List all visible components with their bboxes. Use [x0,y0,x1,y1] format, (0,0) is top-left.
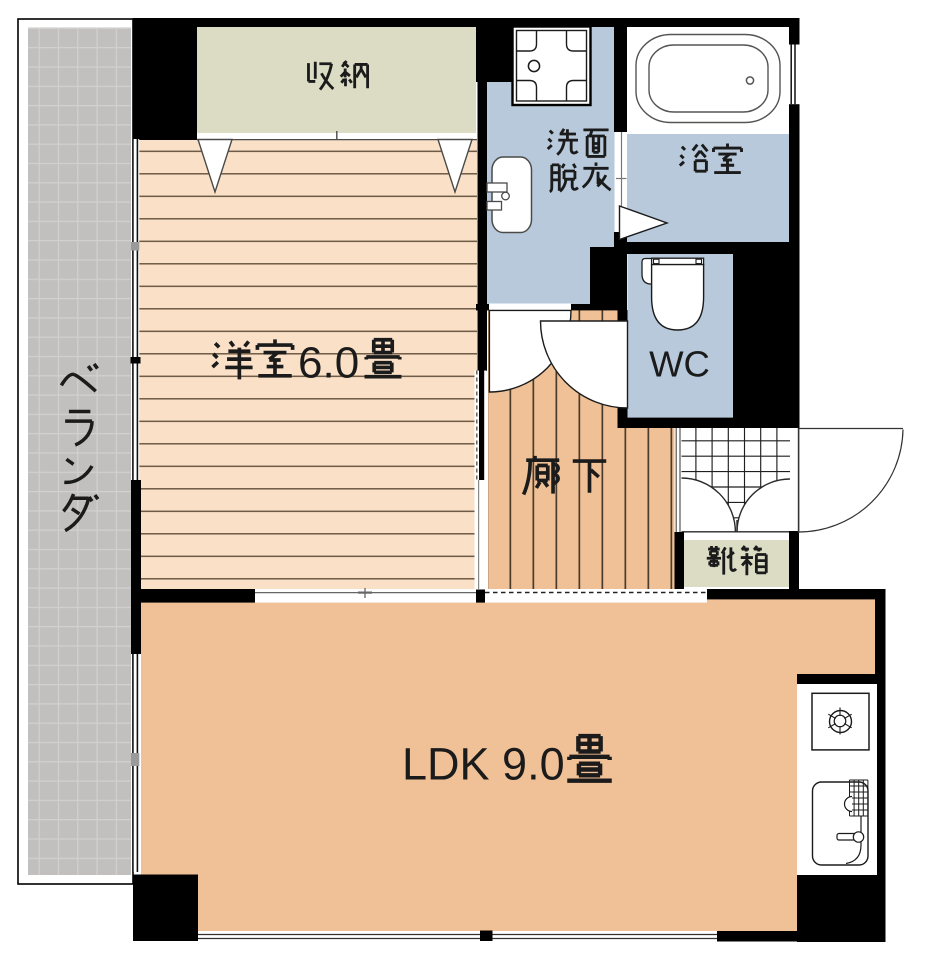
svg-text:LDK 9.0: LDK 9.0 [402,739,565,790]
svg-text:WC: WC [649,344,710,385]
svg-text:6.0: 6.0 [298,339,359,388]
